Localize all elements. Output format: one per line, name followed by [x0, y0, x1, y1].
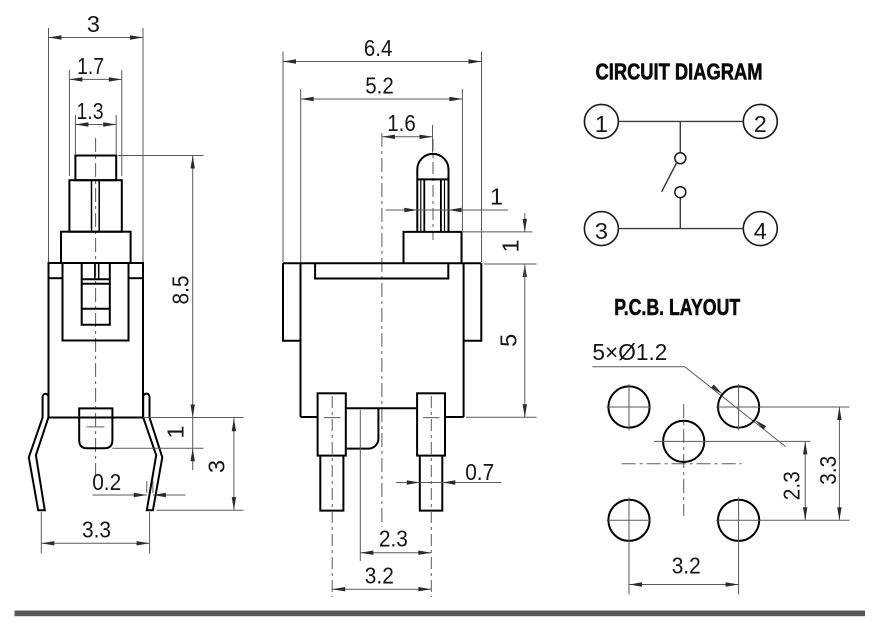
svg-text:6.4: 6.4: [364, 35, 393, 61]
svg-text:4: 4: [754, 218, 767, 244]
svg-text:5: 5: [496, 334, 522, 347]
svg-text:3: 3: [595, 218, 608, 244]
svg-text:2: 2: [754, 111, 767, 137]
svg-text:1: 1: [498, 239, 524, 252]
svg-text:1: 1: [163, 425, 189, 438]
svg-text:1.7: 1.7: [77, 53, 104, 79]
svg-text:1: 1: [595, 111, 608, 137]
svg-text:CIRCUIT DIAGRAM: CIRCUIT DIAGRAM: [596, 58, 763, 84]
svg-text:3.3: 3.3: [82, 517, 111, 543]
svg-text:2.3: 2.3: [779, 471, 805, 500]
svg-text:2.3: 2.3: [379, 526, 408, 552]
svg-text:3: 3: [87, 11, 100, 37]
svg-text:P.C.B. LAYOUT: P.C.B. LAYOUT: [614, 294, 740, 320]
svg-text:3.2: 3.2: [672, 553, 701, 579]
svg-text:0.7: 0.7: [465, 459, 494, 485]
svg-text:5.2: 5.2: [365, 72, 394, 98]
svg-text:8.5: 8.5: [167, 276, 193, 305]
svg-text:1: 1: [490, 184, 503, 210]
svg-text:3.2: 3.2: [365, 563, 394, 589]
svg-text:0.2: 0.2: [92, 469, 121, 495]
svg-text:3.3: 3.3: [815, 456, 841, 485]
svg-text:1.3: 1.3: [77, 98, 104, 124]
svg-text:3: 3: [204, 460, 230, 473]
svg-text:5×Ø1.2: 5×Ø1.2: [592, 339, 667, 365]
svg-text:1.6: 1.6: [387, 110, 416, 136]
